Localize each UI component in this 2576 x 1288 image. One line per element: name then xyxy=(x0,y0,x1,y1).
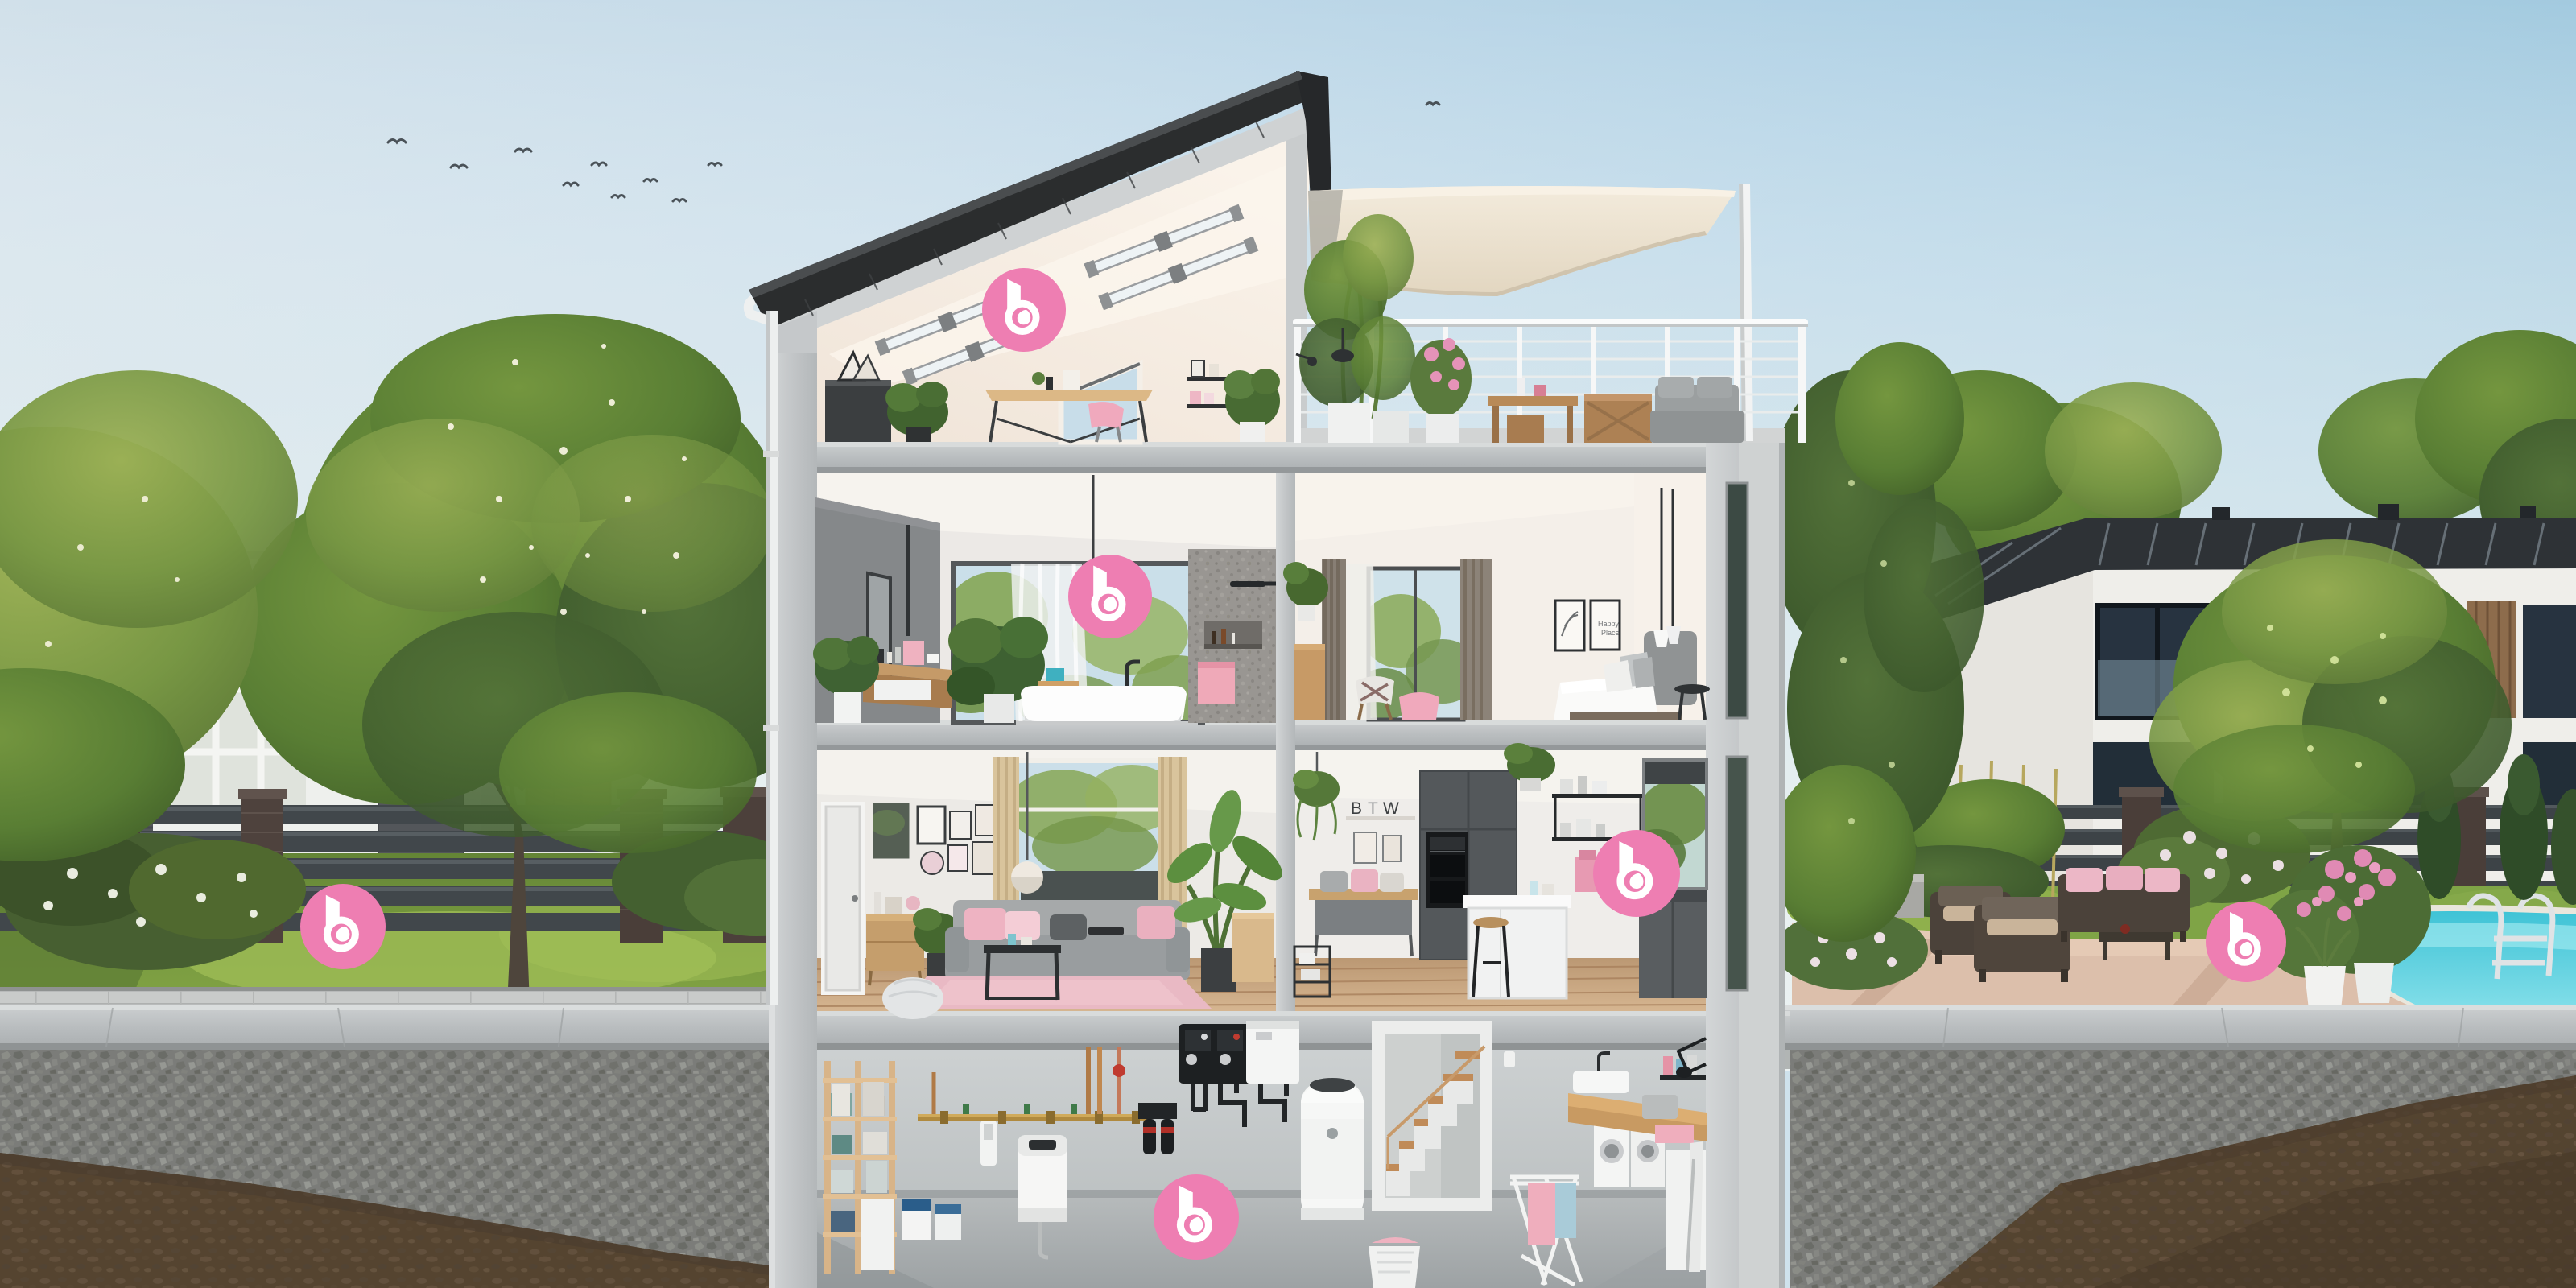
svg-text:Place: Place xyxy=(1601,629,1620,637)
svg-text:T: T xyxy=(1368,799,1378,818)
svg-text:Happy: Happy xyxy=(1598,620,1620,628)
svg-text:B: B xyxy=(1351,799,1362,818)
svg-text:W: W xyxy=(1383,799,1399,818)
